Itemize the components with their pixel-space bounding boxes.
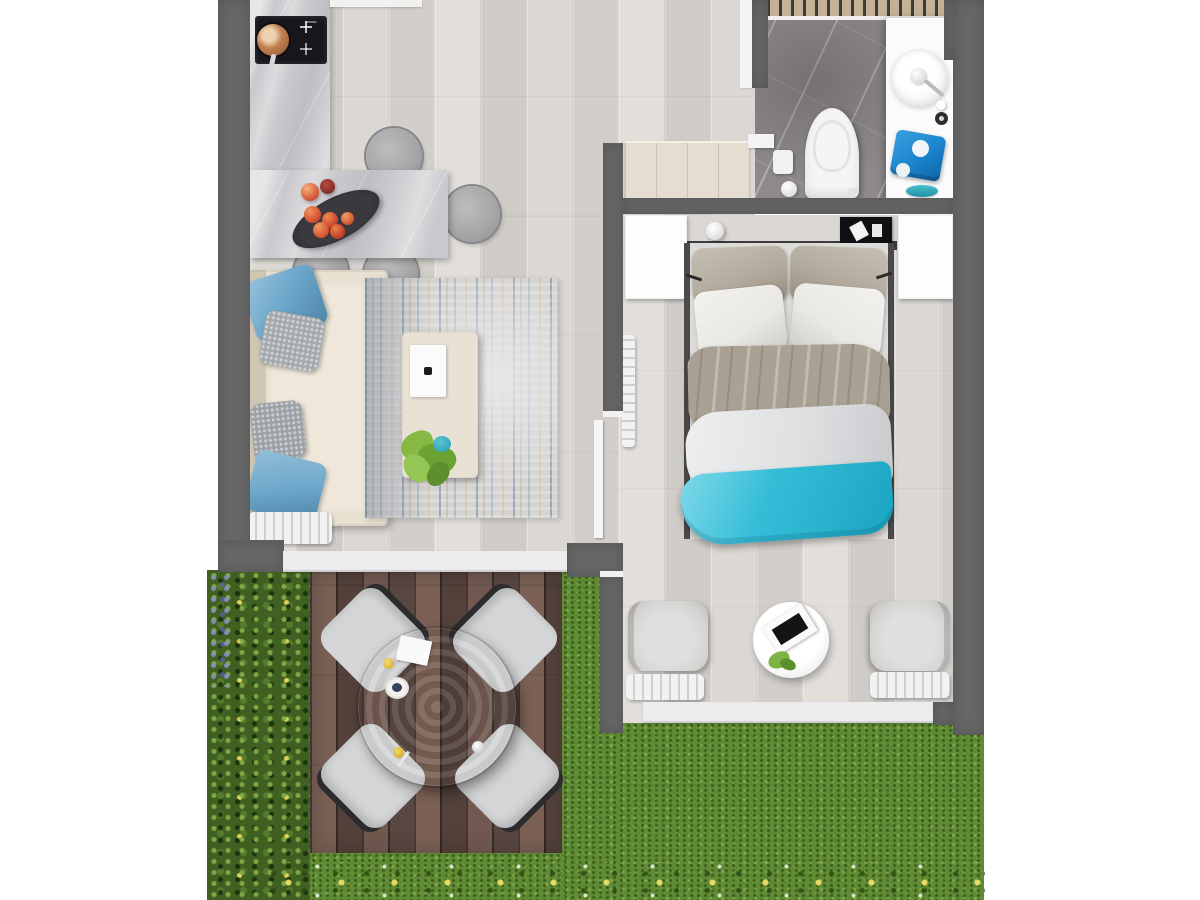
patio-table — [358, 628, 516, 786]
faucet-knob — [936, 100, 946, 110]
flush-button — [848, 188, 858, 196]
wall-bedroom-west — [600, 577, 623, 733]
fruit — [330, 224, 345, 239]
teal-dish — [906, 185, 938, 197]
pomegranate — [320, 179, 335, 194]
teal-throw — [679, 461, 896, 548]
table-lamp — [706, 222, 724, 240]
plant-pot — [433, 436, 451, 452]
nightstand-right — [898, 215, 953, 299]
wall-entry — [603, 143, 623, 417]
cabinet-edge — [330, 0, 422, 7]
copper-pan — [257, 24, 289, 56]
bedroom-radiator-left — [626, 674, 704, 700]
bedroom-radiator-right — [870, 672, 950, 698]
nightstand-left — [625, 215, 687, 299]
drain-cap — [939, 116, 944, 121]
wall-east — [953, 0, 984, 735]
doorway-cap — [603, 411, 623, 417]
armchair-right — [870, 601, 950, 671]
bedroom-terrace-threshold — [643, 702, 933, 723]
flower-border — [255, 862, 985, 900]
shower-partition — [740, 0, 752, 88]
apple — [301, 183, 319, 201]
wall-southwest-corner — [218, 540, 284, 572]
wall-northeast — [944, 0, 956, 60]
wall-bathroom-west — [752, 0, 768, 88]
toilet-seat — [813, 120, 851, 172]
armchair-left — [628, 601, 708, 671]
patio-door-threshold — [283, 551, 567, 572]
fruit — [341, 212, 354, 225]
fruit — [313, 222, 329, 238]
fruit — [304, 206, 321, 223]
doorway-cap — [600, 571, 623, 577]
lavender-patch — [207, 572, 235, 687]
floor-plan-render — [0, 0, 1200, 900]
bath-accessory — [781, 181, 797, 197]
wall-radiator — [622, 335, 635, 447]
towel-dot — [896, 163, 910, 177]
glass — [472, 741, 484, 753]
bathroom-door-open — [748, 134, 774, 148]
wall-west — [218, 0, 250, 570]
toilet-paper-holder — [773, 150, 793, 174]
entry-door — [625, 141, 749, 199]
towel-dot — [912, 140, 929, 157]
wall-end-cap — [933, 702, 954, 725]
wall-bedroom-north — [623, 198, 953, 214]
berries — [392, 683, 402, 692]
knit-pillow — [258, 309, 326, 373]
burner-grate — [305, 21, 307, 33]
shower-slats — [767, 0, 947, 16]
dining-chair-right — [444, 186, 500, 242]
bedroom-door-open — [594, 420, 603, 538]
remote-control — [424, 367, 432, 375]
drink-cup — [383, 658, 394, 669]
burner-grate — [305, 43, 307, 55]
wall-art-graphic — [872, 224, 882, 237]
